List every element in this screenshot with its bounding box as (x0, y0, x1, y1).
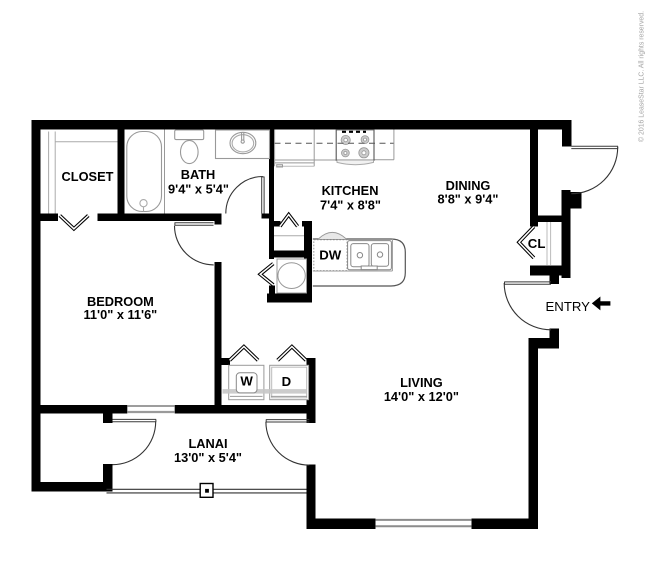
svg-text:13'0" x 5'4": 13'0" x 5'4" (174, 450, 242, 465)
svg-text:7'4" x 8'8": 7'4" x 8'8" (320, 198, 381, 213)
svg-text:CLOSET: CLOSET (62, 169, 114, 184)
svg-text:14'0" x 12'0": 14'0" x 12'0" (384, 389, 459, 404)
svg-text:11'0" x 11'6": 11'0" x 11'6" (84, 307, 158, 322)
svg-text:CL: CL (528, 236, 546, 251)
svg-text:LANAI: LANAI (188, 436, 227, 451)
svg-text:LIVING: LIVING (400, 375, 443, 390)
svg-text:8'8" x 9'4": 8'8" x 9'4" (438, 192, 499, 207)
svg-text:ENTRY: ENTRY (546, 299, 591, 314)
svg-text:W: W (240, 374, 253, 389)
svg-text:© 2016 LeaseStar LLC. All righ: © 2016 LeaseStar LLC. All rights reserve… (637, 11, 646, 142)
svg-text:KITCHEN: KITCHEN (322, 183, 379, 198)
svg-text:BATH: BATH (181, 167, 216, 182)
svg-text:9'4" x 5'4": 9'4" x 5'4" (168, 181, 229, 196)
svg-text:DW: DW (319, 247, 342, 262)
svg-text:D: D (282, 374, 292, 389)
